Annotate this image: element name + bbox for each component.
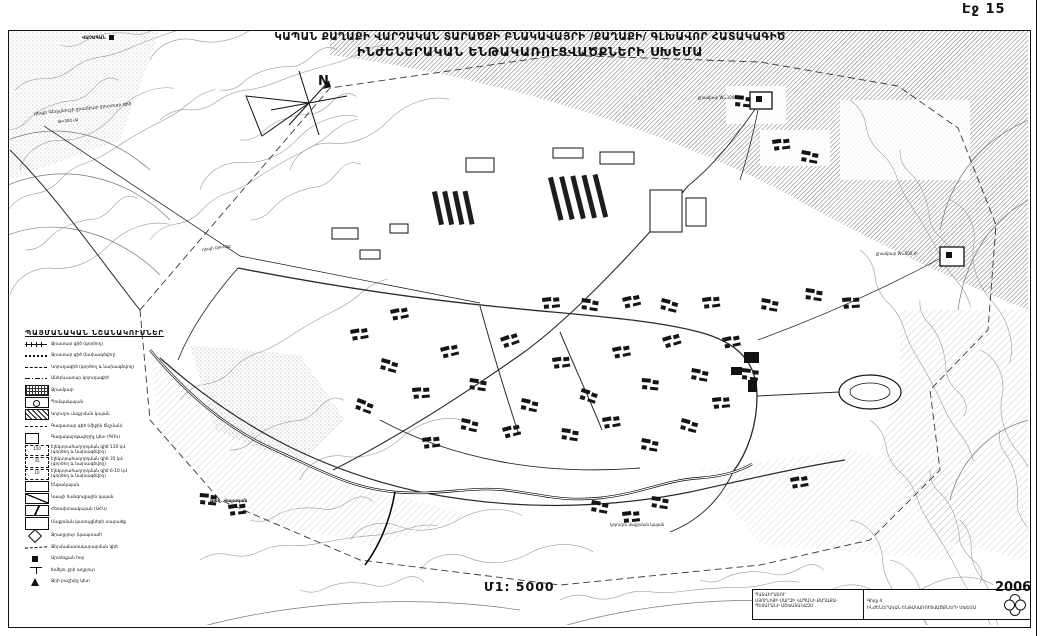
reservoir-north-label: ջրամբար W=1000 մ³ (698, 96, 742, 100)
legend-item: Ենթակայան (25, 481, 138, 492)
legend-item: Անձրևատար կոյուղագիծ (25, 374, 138, 385)
legend-item: Ջրամբար (25, 385, 138, 396)
power-line-35-icon: 35 (25, 457, 49, 468)
client-line3: ՊԵՏԱՐԱՆԻ ԱՇԽԱՏԱԿԱԶՄ (755, 603, 861, 609)
title-block: ՊԱՏՎԻՐԱՏՈՒ` ՍՅՈՒՆԻՔԻ ՄԱՐԶԻ ԿԱՊԱՆԻ ՔԱՂԱՔԱ… (752, 589, 1031, 620)
artesian-well-icon (25, 554, 47, 563)
sheet-title: ԻՆԺԵՆԵՐԱԿԱՆ ԵՆԹԱԿԱՌՈՒՑՎԱԾՔՆԵՐԻ ՍԽԵՄԱ (867, 605, 1000, 611)
stadium (839, 375, 901, 409)
reservoir-icon (25, 385, 49, 396)
scale-label: Մ1: 5000 (484, 579, 555, 594)
legend-item: 10Էլեկտրահաղորդման գիծ 6-10 կՎ (գործող և… (25, 469, 138, 480)
map-title-line1: ԿԱՊԱՆ ՔԱՂԱՔԻ ՎԱՐՉԱԿԱՆ ՏԱՐԱԾՔԻ ԲՆԱԿԱՎԱՅՐԻ… (250, 31, 810, 44)
water-line-existing-icon (25, 340, 47, 349)
legend-header: ՊԱՅՄԱՆԱԿԱՆ ՆՇԱՆԱԿՈՒՄՆԵՐ (25, 328, 138, 337)
map-title-line2: ԻՆԺԵՆԵՐԱԿԱՆ ԵՆԹԱԿԱՌՈՒՑՎԱԾՔՆԵՐԻ ՍԽԵՄԱ (250, 44, 810, 60)
telephone-station-icon (25, 505, 49, 516)
heat-line-icon (25, 543, 47, 552)
reservoir-east (940, 247, 964, 266)
treatment-area-icon (25, 517, 49, 530)
treatment-plant-icon (25, 409, 49, 420)
sewer-line-icon (25, 363, 47, 372)
title-block-client: ՊԱՏՎԻՐԱՏՈՒ` ՍՅՈՒՆԻՔԻ ՄԱՐԶԻ ԿԱՊԱՆԻ ՔԱՂԱՔԱ… (753, 590, 864, 619)
legend-item: Կոյուղու մաքրման կայան (25, 409, 138, 420)
water-line-planned-icon (25, 351, 47, 360)
legend-item: Արտեզյան հոր (25, 554, 138, 565)
legend-item: Ջրատար գիծ (նախագծվող) (25, 351, 138, 362)
gas-line-icon (25, 422, 47, 431)
legend-item: Ջրաղբյուր (կապտաժ) (25, 531, 138, 542)
north-rose-icon (246, 71, 347, 136)
storm-sewer-line-icon (25, 374, 47, 383)
reservoir-north (750, 92, 772, 109)
spring-captage-icon (28, 529, 42, 543)
pump-station-icon (25, 397, 49, 408)
legend-item: Ջրատար գիծ (գործող) (25, 339, 138, 350)
book-number: Գիրք 4 (867, 598, 1000, 604)
legend-item: 35Էլեկտրահաղորդման գիծ 35 կՎ (գործող և ն… (25, 457, 138, 468)
map-sheet: Էջ 15 (0, 0, 1040, 636)
water-source-icon (25, 566, 47, 575)
district-label-vachagan: թաղ. Վաչագան (210, 500, 247, 505)
legend-panel: ՊԱՅՄԱՆԱԿԱՆ ՆՇԱՆԱԿՈՒՄՆԵՐ Ջրատար գիծ (գործ… (24, 327, 139, 591)
legend-item: Պոմպակայան (25, 397, 138, 408)
legend-item: Ջերմամատակարարման գիծ (25, 542, 138, 553)
legend-item: Գազատար գիծ (միջին ճնշման) (25, 421, 138, 432)
legend-item: Կապի հանգուցային կայան (25, 493, 138, 504)
year-label: 2006 (995, 580, 1031, 595)
treatment-plant-label: կոյուղու մաքրման կայան (610, 523, 664, 527)
legend-item: Ջրի բաշխիչ կետ (25, 577, 138, 588)
communication-node-icon (25, 493, 49, 504)
quatrefoil-stamp-icon (1003, 593, 1027, 617)
legend-item: 110Էլեկտրահաղորդման գիծ 110 կՎ (գործող և… (25, 445, 138, 456)
legend-item: Գազակարգավորիչ կետ (ԳՌԿ) (25, 433, 138, 444)
distribution-point-icon (31, 578, 39, 586)
legend-item: Խմելու ջրի աղբյուր (25, 565, 138, 576)
substation-icon (25, 481, 49, 492)
map-title: ԿԱՊԱՆ ՔԱՂԱՔԻ ՎԱՐՉԱԿԱՆ ՏԱՐԱԾՔԻ ԲՆԱԿԱՎԱՅՐԻ… (250, 31, 810, 60)
north-label: N (318, 74, 329, 89)
village-label-vachagan: ՎԱՉԱԳԱՆ (82, 35, 114, 42)
legend-item: Հեռախոսակայան (ԱՀԿ) (25, 505, 138, 516)
map-graphic (0, 0, 1040, 636)
legend-item: Մաքրման կառույցների տարածք (25, 517, 138, 530)
power-line-110-icon: 110 (25, 445, 49, 456)
gas-regulator-icon (25, 433, 39, 444)
legend-item: Կոյուղագիծ (գործող և նախագծվող) (25, 362, 138, 373)
reservoir-east-label: ջրամբար W=500 մ³ (876, 252, 918, 256)
power-line-10-icon: 10 (25, 469, 49, 480)
